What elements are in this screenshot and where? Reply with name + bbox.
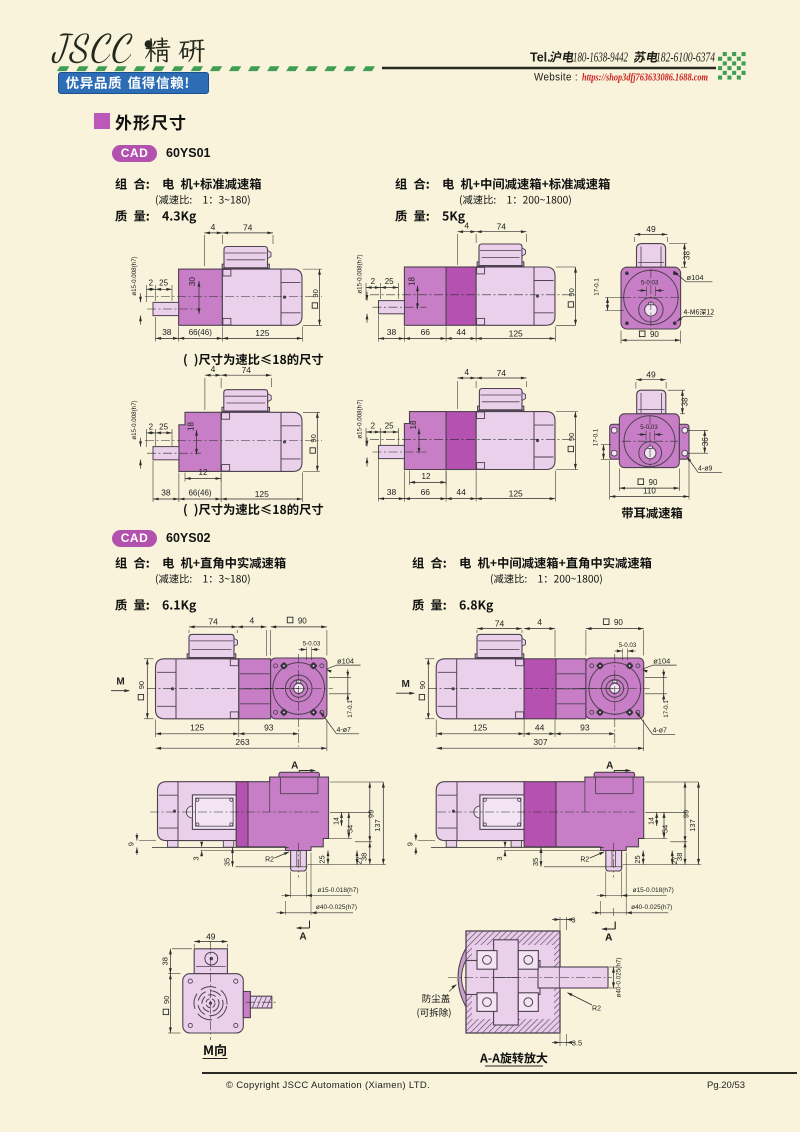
svg-text:38: 38 xyxy=(160,957,169,965)
svg-text:90: 90 xyxy=(650,330,659,339)
svg-text:2: 2 xyxy=(371,277,376,286)
svg-text:18: 18 xyxy=(409,420,418,429)
svg-text:27: 27 xyxy=(355,856,364,864)
svg-text:ø104: ø104 xyxy=(337,656,354,665)
svg-text:74: 74 xyxy=(497,222,507,232)
svg-text:125: 125 xyxy=(255,489,269,499)
svg-text:54: 54 xyxy=(661,825,670,833)
svg-text:25: 25 xyxy=(385,277,394,286)
svg-text:66(46): 66(46) xyxy=(189,328,212,337)
svg-text:35: 35 xyxy=(531,858,540,866)
svg-text:A: A xyxy=(605,933,612,944)
svg-text:4: 4 xyxy=(211,364,216,374)
svg-text:38: 38 xyxy=(681,397,690,406)
svg-text:49: 49 xyxy=(206,931,216,941)
svg-text:99: 99 xyxy=(367,810,376,818)
svg-text:74: 74 xyxy=(495,618,505,628)
svg-text:137: 137 xyxy=(373,819,382,832)
svg-text:12: 12 xyxy=(422,472,431,481)
svg-text:93: 93 xyxy=(580,722,590,732)
svg-text:Website :: Website : xyxy=(534,72,578,84)
svg-text:54: 54 xyxy=(346,825,355,833)
svg-text:4: 4 xyxy=(211,222,216,232)
svg-text:125: 125 xyxy=(509,488,523,498)
svg-text:3.5: 3.5 xyxy=(572,1039,582,1048)
svg-text:R2: R2 xyxy=(592,1006,601,1013)
svg-text:5-0.03: 5-0.03 xyxy=(640,424,658,431)
svg-text:66: 66 xyxy=(421,327,431,337)
svg-text:27: 27 xyxy=(670,856,679,864)
svg-text:ø15-0.008(h7): ø15-0.008(h7) xyxy=(357,254,364,293)
svg-text:ø104: ø104 xyxy=(653,656,670,665)
svg-text:R2: R2 xyxy=(580,857,589,864)
svg-text:4-ø7: 4-ø7 xyxy=(653,728,668,735)
svg-text:74: 74 xyxy=(242,365,252,375)
svg-text:49: 49 xyxy=(646,224,656,234)
svg-text:ø40-0.025(h7): ø40-0.025(h7) xyxy=(316,904,357,911)
svg-text:38: 38 xyxy=(387,487,397,497)
svg-text:99: 99 xyxy=(682,810,691,818)
svg-text:2: 2 xyxy=(149,279,154,288)
svg-text:5-0.03: 5-0.03 xyxy=(303,641,321,648)
svg-text:3: 3 xyxy=(495,856,504,860)
svg-text:17-0.1: 17-0.1 xyxy=(347,700,354,718)
svg-text:R2: R2 xyxy=(265,857,274,864)
svg-text:2: 2 xyxy=(371,421,376,430)
svg-text:18: 18 xyxy=(186,422,195,431)
svg-text:38: 38 xyxy=(387,327,397,337)
svg-text:4-ø9: 4-ø9 xyxy=(698,466,713,473)
svg-text:25: 25 xyxy=(159,422,168,431)
svg-text:M: M xyxy=(116,677,124,688)
svg-text:74: 74 xyxy=(208,617,218,627)
svg-text:9: 9 xyxy=(406,842,415,846)
svg-text:35: 35 xyxy=(222,858,231,866)
svg-text:3: 3 xyxy=(192,856,201,860)
svg-text:90: 90 xyxy=(162,996,171,1004)
svg-text:ø15-0.018(h7): ø15-0.018(h7) xyxy=(633,887,674,894)
svg-text:17-0.1: 17-0.1 xyxy=(593,428,600,446)
svg-text:44: 44 xyxy=(456,327,466,337)
svg-text:90: 90 xyxy=(137,681,146,689)
svg-text:25: 25 xyxy=(318,855,327,863)
svg-text:14: 14 xyxy=(649,817,656,825)
svg-text:49: 49 xyxy=(646,370,656,380)
svg-text:ø40-0.025(h7): ø40-0.025(h7) xyxy=(631,904,672,911)
svg-text:25: 25 xyxy=(159,279,168,288)
svg-text:ø15-0.008(h7): ø15-0.008(h7) xyxy=(131,256,138,295)
svg-text:307: 307 xyxy=(533,737,547,747)
svg-text:125: 125 xyxy=(473,722,487,732)
svg-text:18: 18 xyxy=(407,277,416,286)
svg-text:14: 14 xyxy=(333,817,340,825)
svg-text:263: 263 xyxy=(235,737,249,747)
svg-text:90: 90 xyxy=(567,288,576,296)
svg-text:125: 125 xyxy=(190,722,204,732)
svg-text:4-ø7: 4-ø7 xyxy=(337,727,352,734)
svg-text:90: 90 xyxy=(418,681,427,689)
svg-text:ø104: ø104 xyxy=(687,273,704,282)
svg-text:38: 38 xyxy=(683,251,692,260)
svg-text:38: 38 xyxy=(161,487,171,497)
svg-text:44: 44 xyxy=(456,487,466,497)
svg-text:A: A xyxy=(299,932,306,943)
svg-text:A: A xyxy=(291,761,298,772)
svg-text:ø15-0.008(h7): ø15-0.008(h7) xyxy=(131,400,138,439)
svg-text:9: 9 xyxy=(127,842,136,846)
svg-text:110: 110 xyxy=(643,487,656,496)
svg-text:ø15-0.008(h7): ø15-0.008(h7) xyxy=(357,399,364,438)
svg-text:66: 66 xyxy=(421,487,431,497)
svg-text:90: 90 xyxy=(567,433,576,441)
svg-text:4: 4 xyxy=(250,615,255,625)
svg-text:17-0.1: 17-0.1 xyxy=(593,278,600,296)
svg-text:36: 36 xyxy=(701,437,710,446)
svg-text:25: 25 xyxy=(633,855,642,863)
svg-text:25: 25 xyxy=(385,421,394,430)
svg-text:ø15-0.018(h7): ø15-0.018(h7) xyxy=(317,887,358,894)
svg-text:74: 74 xyxy=(497,368,507,378)
svg-text:12: 12 xyxy=(199,468,208,477)
svg-text:125: 125 xyxy=(255,328,269,338)
svg-text:90: 90 xyxy=(309,434,318,442)
svg-text:2: 2 xyxy=(149,422,154,431)
svg-text:66(46): 66(46) xyxy=(188,488,211,497)
svg-text:74: 74 xyxy=(243,223,253,233)
svg-text:4: 4 xyxy=(464,367,469,377)
svg-text:ø40-0.025(h7): ø40-0.025(h7) xyxy=(616,958,623,998)
svg-text:M: M xyxy=(402,679,410,690)
svg-text:90: 90 xyxy=(614,618,623,627)
svg-text:125: 125 xyxy=(509,328,523,338)
svg-text:4: 4 xyxy=(464,221,469,231)
svg-text:30: 30 xyxy=(188,277,197,286)
svg-text:4: 4 xyxy=(537,617,542,627)
svg-text:137: 137 xyxy=(688,819,697,832)
svg-text:A: A xyxy=(606,761,613,772)
svg-text:180-1638-9442: 180-1638-9442 xyxy=(573,50,628,65)
svg-text:Tel.: Tel. xyxy=(530,51,551,65)
svg-text:44: 44 xyxy=(535,722,545,732)
svg-text:5-0.03: 5-0.03 xyxy=(641,280,659,287)
svg-text:5-0.03: 5-0.03 xyxy=(619,642,637,649)
svg-text:https://shop3dfj763633086.1688: https://shop3dfj763633086.1688.com xyxy=(582,73,708,84)
svg-text:38: 38 xyxy=(162,327,172,337)
svg-text:93: 93 xyxy=(264,722,274,732)
svg-text:3: 3 xyxy=(571,916,575,925)
svg-text:17-0.1: 17-0.1 xyxy=(663,700,670,718)
svg-text:182-6100-6374: 182-6100-6374 xyxy=(656,50,715,65)
svg-text:90: 90 xyxy=(298,616,307,625)
